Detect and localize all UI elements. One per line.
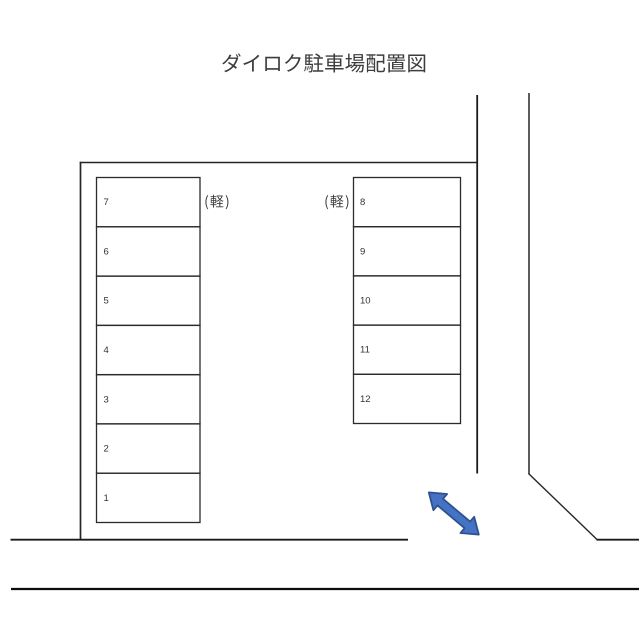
svg-text:6: 6 (104, 246, 109, 257)
svg-text:2: 2 (104, 444, 109, 455)
svg-text:9: 9 (360, 246, 365, 257)
svg-text:12: 12 (360, 394, 371, 405)
svg-text:8: 8 (360, 197, 365, 208)
svg-text:1: 1 (104, 493, 109, 504)
svg-text:3: 3 (104, 394, 109, 405)
svg-text:11: 11 (360, 345, 370, 356)
svg-text:7: 7 (104, 197, 109, 208)
svg-text:5: 5 (104, 296, 109, 307)
svg-text:10: 10 (360, 296, 371, 307)
svg-text:4: 4 (104, 345, 109, 356)
